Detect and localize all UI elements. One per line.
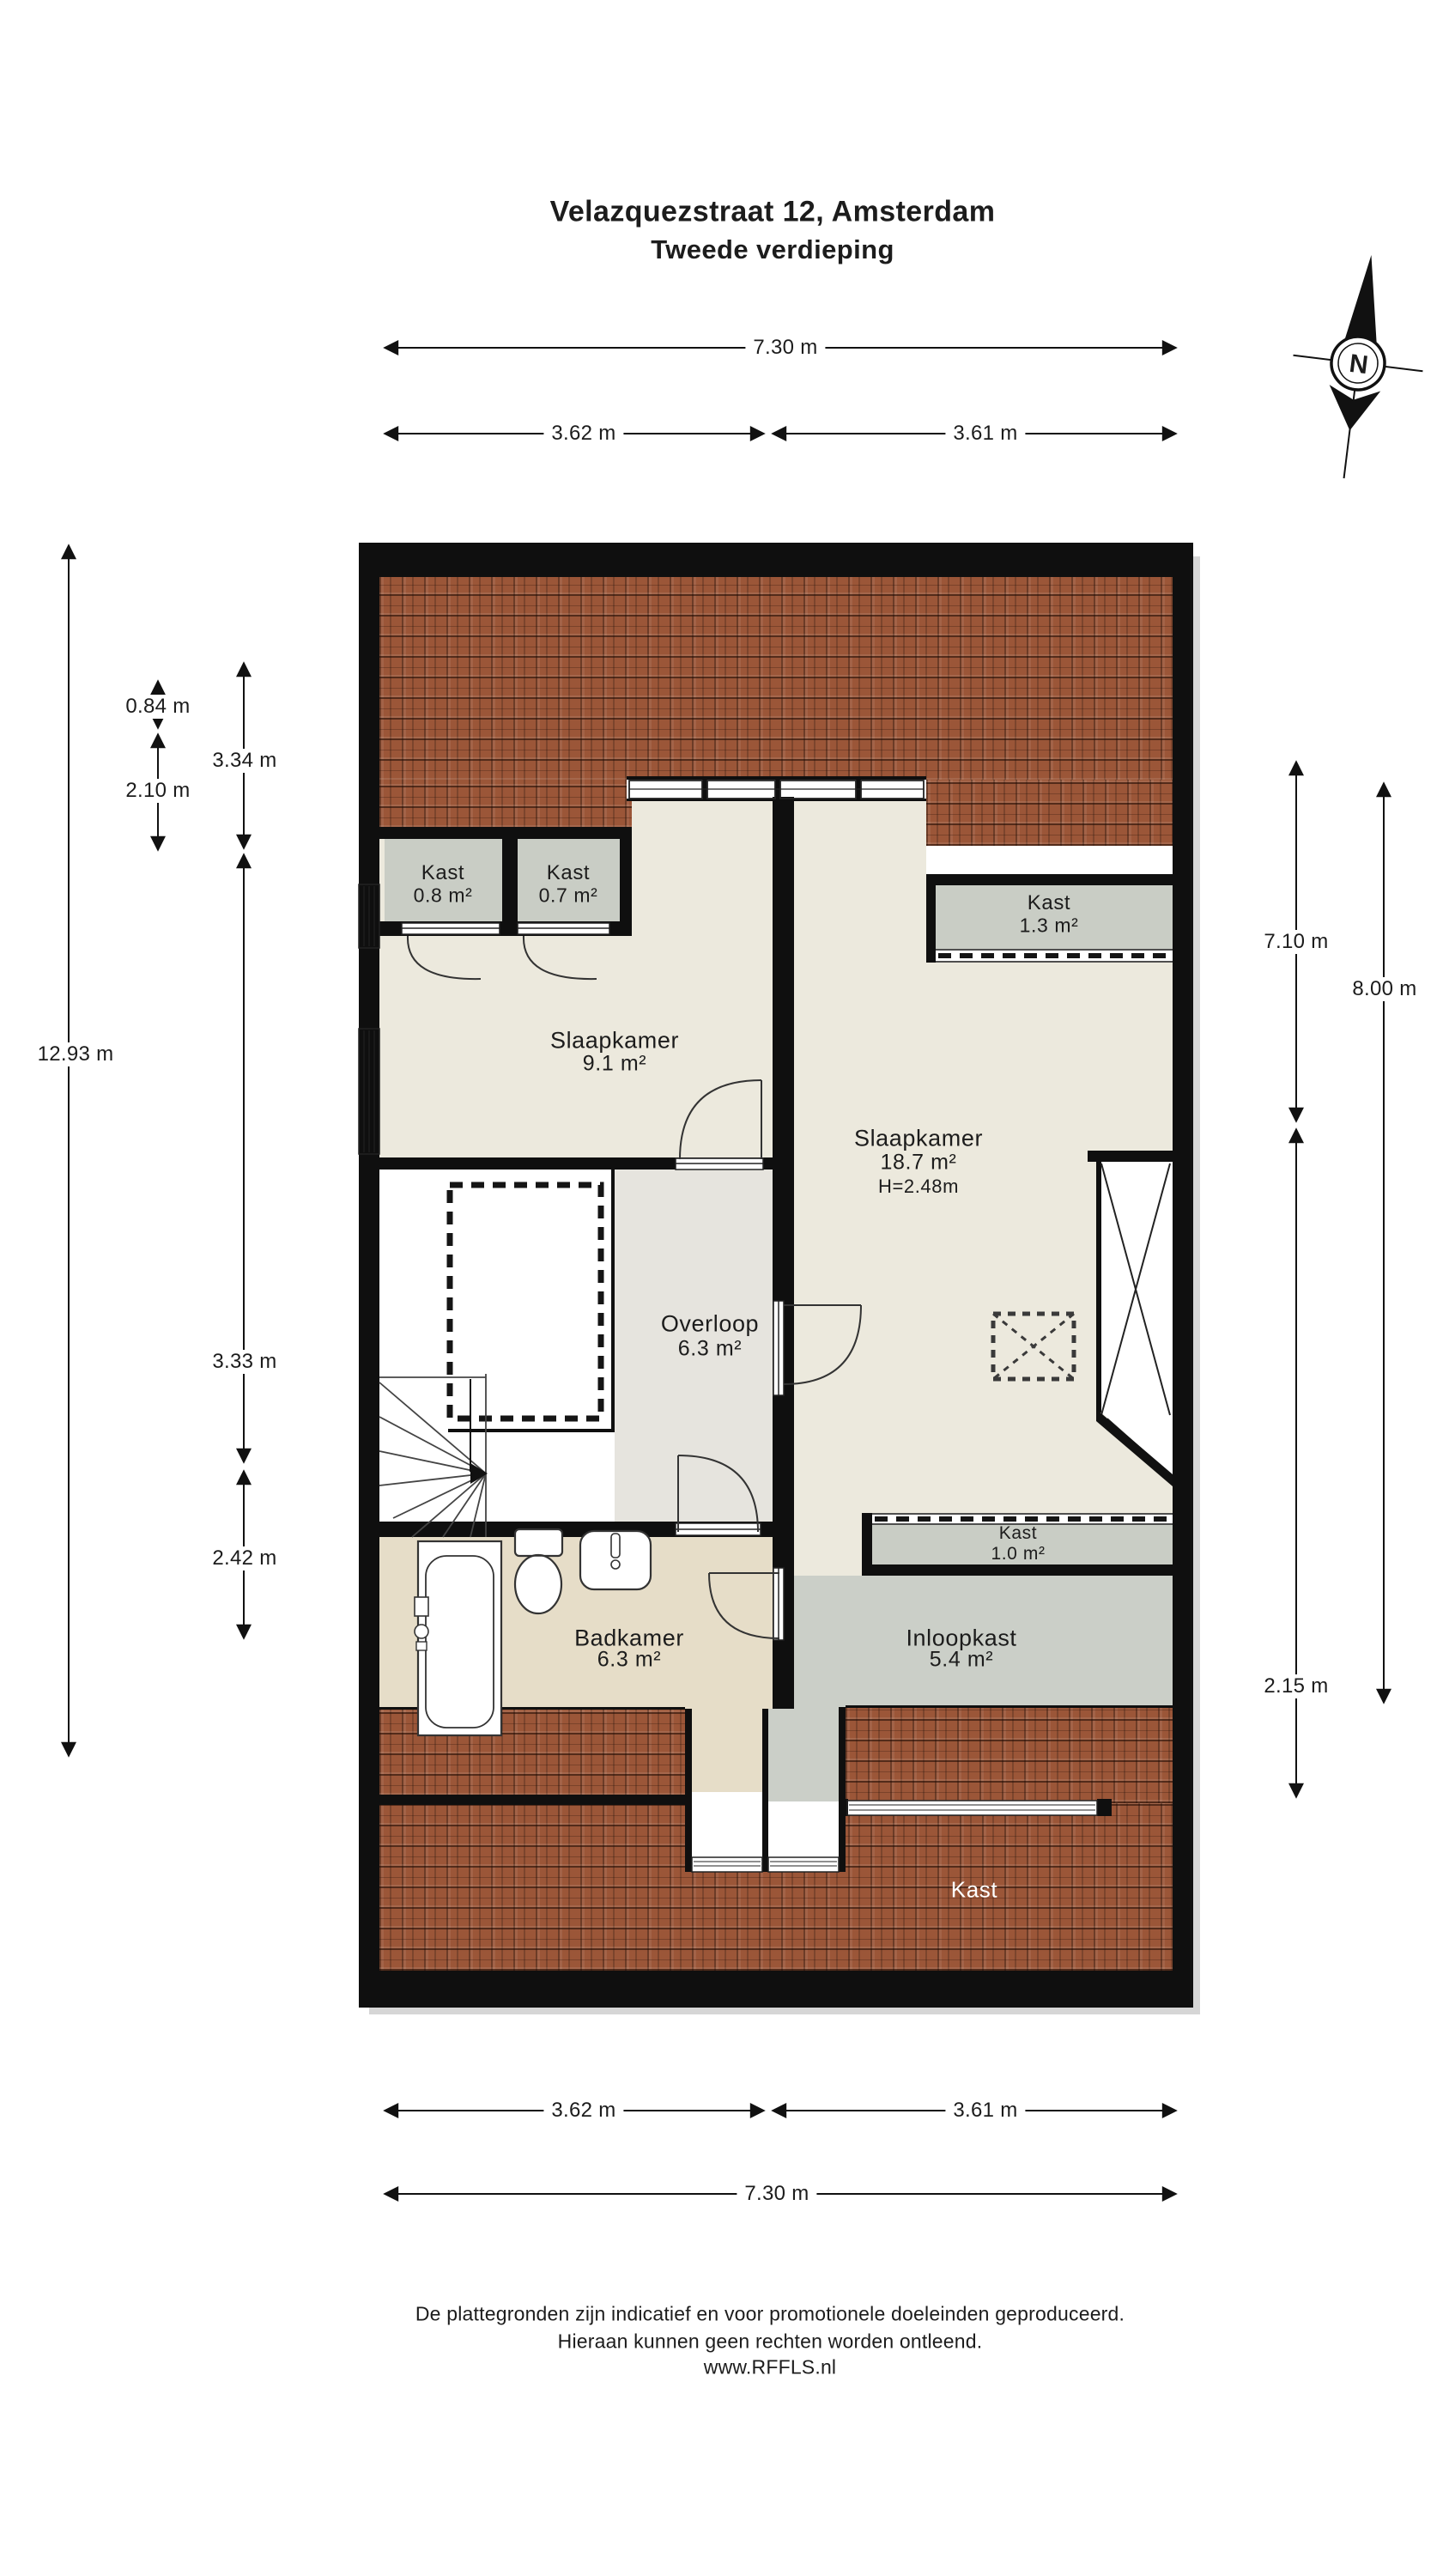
dim-bottom-total: 7.30 m (737, 2182, 816, 2206)
dim-left-084: 0.84 m (118, 695, 197, 719)
dim-right-215: 2.15 m (1256, 1674, 1336, 1698)
page-title-floor: Tweede verdieping (651, 234, 894, 265)
dim-right-800: 8.00 m (1344, 977, 1424, 1001)
room-label-inloopkast-area: 5.4 m² (930, 1648, 993, 1673)
room-label-slaapkamer-right-height: H=2.48m (878, 1176, 959, 1198)
dim-bottom-left: 3.62 m (543, 2099, 623, 2123)
dim-left-210: 2.10 m (118, 779, 197, 803)
dim-bottom-right: 3.61 m (945, 2099, 1025, 2123)
room-label-slaapkamer-left-name: Slaapkamer (550, 1028, 679, 1054)
top-windows (629, 781, 924, 799)
room-label-kast10-area: 1.0 m² (991, 1544, 1045, 1564)
compass-north-label: N (1348, 349, 1370, 380)
skylight-symbol (993, 1314, 1074, 1379)
bottom-windows (692, 1801, 1097, 1872)
room-label-kast10-name: Kast (999, 1523, 1037, 1544)
dimension-lines (69, 348, 1384, 2194)
room-label-kast08-area: 0.8 m² (414, 884, 473, 908)
room-label-kast13-area: 1.3 m² (1020, 914, 1079, 938)
room-label-kast07-name: Kast (547, 861, 590, 885)
dim-left-333: 3.33 m (204, 1350, 284, 1374)
room-label-slaapkamer-right-area: 18.7 m² (881, 1151, 957, 1176)
room-label-slaapkamer-right-name: Slaapkamer (854, 1126, 983, 1152)
room-label-kast08-name: Kast (421, 861, 464, 885)
left-windows (359, 884, 379, 1154)
right-dormer-window-glazing (1096, 1163, 1173, 1486)
floorplan-page: Velazquezstraat 12, Amsterdam Tweede ver… (0, 0, 1449, 2576)
dim-right-710: 7.10 m (1256, 930, 1336, 954)
dim-top-total: 7.30 m (745, 336, 825, 360)
floorplan-linework (0, 0, 1449, 2576)
dim-left-334: 3.34 m (204, 749, 284, 773)
void-dashed-outline (450, 1185, 601, 1419)
dim-top-left: 3.62 m (543, 422, 623, 446)
footer-website: www.RFFLS.nl (704, 2356, 836, 2379)
room-label-badkamer-area: 6.3 m² (597, 1648, 661, 1673)
sink (580, 1531, 651, 1589)
dim-top-right: 3.61 m (945, 422, 1025, 446)
bathtub (415, 1541, 501, 1735)
room-label-kast-roof: Kast (951, 1877, 997, 1904)
room-label-kast07-area: 0.7 m² (539, 884, 598, 908)
footer-disclaimer-line1: De plattegronden zijn indicatief en voor… (415, 2303, 1125, 2326)
dim-left-242: 2.42 m (204, 1546, 284, 1571)
room-label-kast13-name: Kast (1028, 891, 1070, 915)
dim-left-total: 12.93 m (30, 1042, 122, 1066)
room-label-overloop-area: 6.3 m² (678, 1337, 742, 1362)
footer-disclaimer-line2: Hieraan kunnen geen rechten worden ontle… (558, 2330, 983, 2354)
room-label-slaapkamer-left-area: 9.1 m² (583, 1052, 646, 1077)
toilet (515, 1529, 562, 1613)
page-title-address: Velazquezstraat 12, Amsterdam (550, 196, 996, 229)
room-label-overloop-name: Overloop (661, 1311, 759, 1338)
